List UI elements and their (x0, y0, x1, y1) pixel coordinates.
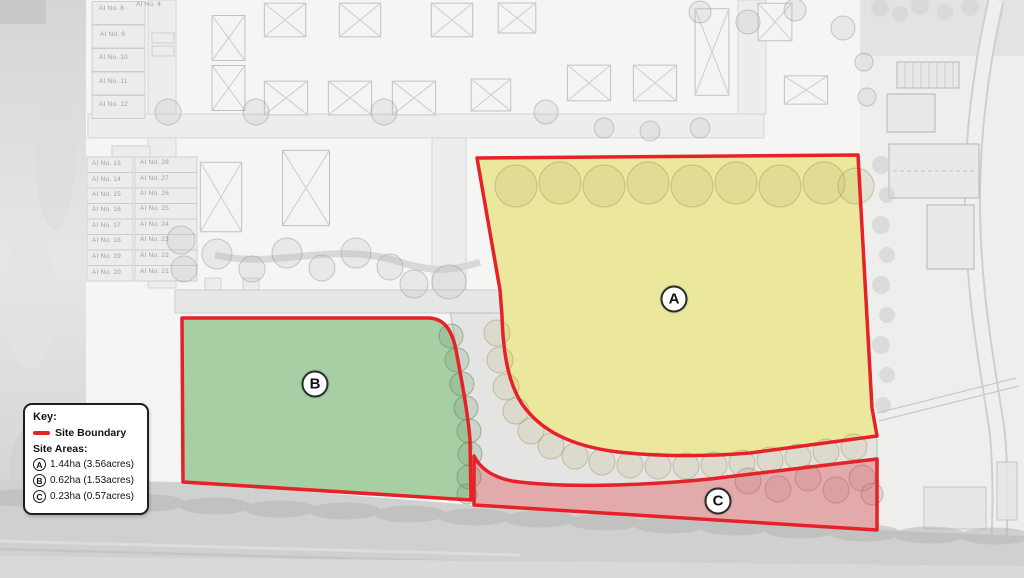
plot-label: AI No. 15 (92, 192, 121, 199)
legend: Key: Site Boundary Site Areas: A 1.44ha … (23, 403, 149, 515)
legend-area-row: B 0.62ha (1.53acres) (33, 474, 139, 487)
site-plan-map (0, 0, 1024, 578)
area-value: 1.44ha (3.56acres) (50, 459, 134, 470)
site-plan-page: AI No. 4AI No. 8AI No. 9AI No. 10AI No. … (0, 0, 1024, 578)
right-aerial-zone (860, 0, 1024, 578)
plot-label: AI No. 12 (99, 102, 128, 109)
plot-label: AI No. 11 (99, 79, 127, 86)
plot-label: AI No. 4 (136, 2, 161, 9)
plot-label: AI No. 22 (140, 253, 169, 260)
plot-label: AI No. 27 (140, 176, 169, 183)
area-marker: C (705, 488, 732, 515)
site-areas-heading: Site Areas: (33, 443, 139, 455)
plot-label: AI No. 26 (140, 191, 169, 198)
area-marker: A (661, 286, 688, 313)
area-marker-letter: C (713, 494, 724, 509)
legend-title: Key: (33, 411, 139, 423)
legend-site-boundary-row: Site Boundary (33, 427, 139, 439)
plot-label: AI No. 17 (92, 223, 121, 230)
area-marker-letter: B (310, 377, 321, 392)
legend-areas-list: A 1.44ha (3.56acres) B 0.62ha (1.53acres… (33, 458, 139, 503)
area-marker: B (302, 371, 329, 398)
plot-label: AI No. 18 (92, 238, 121, 245)
plot-label: AI No. 23 (140, 237, 169, 244)
area-letter-badge: C (33, 490, 46, 503)
plot-label: AI No. 10 (99, 55, 128, 62)
area-marker-letter: A (669, 292, 680, 307)
plot-label: AI No. 19 (92, 254, 121, 261)
plot-label: AI No. 20 (92, 270, 121, 277)
plot-label: AI No. 13 (92, 161, 121, 168)
area-b-region (182, 318, 471, 500)
plot-label: AI No. 14 (92, 177, 121, 184)
area-letter-badge: A (33, 458, 46, 471)
plot-label: AI No. 21 (140, 269, 169, 276)
site-boundary-label: Site Boundary (55, 427, 126, 439)
area-value: 0.62ha (1.53acres) (50, 475, 134, 486)
site-boundary-line-icon (33, 431, 50, 435)
plot-label: AI No. 9 (100, 32, 125, 39)
area-value: 0.23ha (0.57acres) (50, 491, 134, 502)
area-letter-badge: B (33, 474, 46, 487)
plot-label: AI No. 28 (140, 160, 169, 167)
plot-label: AI No. 8 (99, 6, 124, 13)
legend-area-row: A 1.44ha (3.56acres) (33, 458, 139, 471)
plot-label: AI No. 24 (140, 222, 169, 229)
plot-label: AI No. 16 (92, 207, 121, 214)
legend-area-row: C 0.23ha (0.57acres) (33, 490, 139, 503)
plot-label: AI No. 25 (140, 206, 169, 213)
